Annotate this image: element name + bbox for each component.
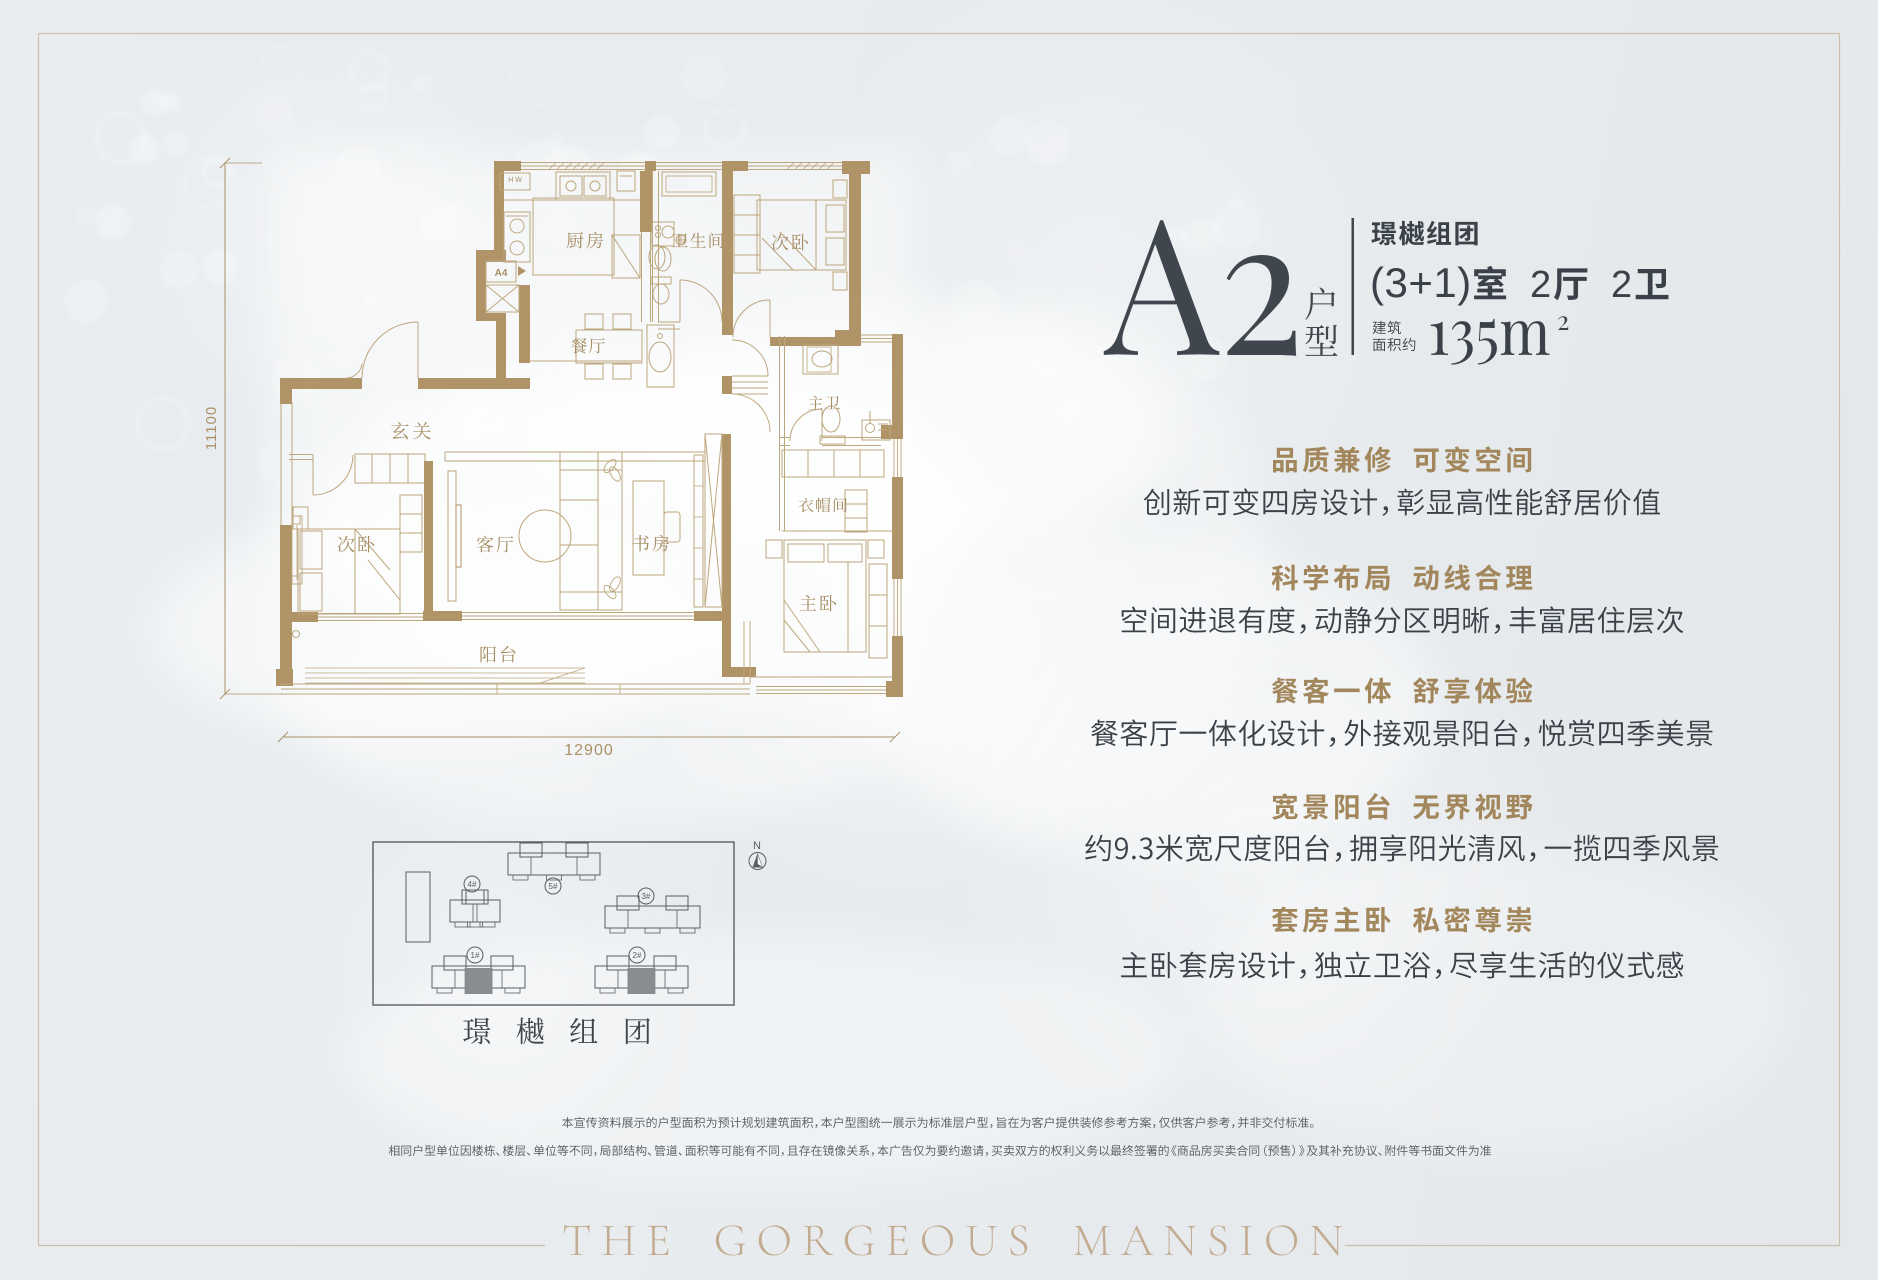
- svg-text:4#: 4#: [468, 880, 477, 889]
- svg-text:2: 2: [1530, 264, 1551, 306]
- svg-text:3#: 3#: [642, 892, 651, 901]
- svg-text:N: N: [753, 840, 761, 852]
- svg-text:H W: H W: [508, 177, 522, 184]
- svg-text:5#: 5#: [549, 882, 558, 891]
- svg-text:1#: 1#: [471, 951, 480, 960]
- svg-text:12900: 12900: [564, 742, 614, 759]
- svg-text:(3+1): (3+1): [1370, 259, 1472, 306]
- svg-text:2: 2: [1611, 264, 1632, 306]
- svg-text:A4: A4: [495, 268, 508, 279]
- svg-text:2#: 2#: [633, 951, 642, 960]
- svg-text:11100: 11100: [203, 406, 220, 451]
